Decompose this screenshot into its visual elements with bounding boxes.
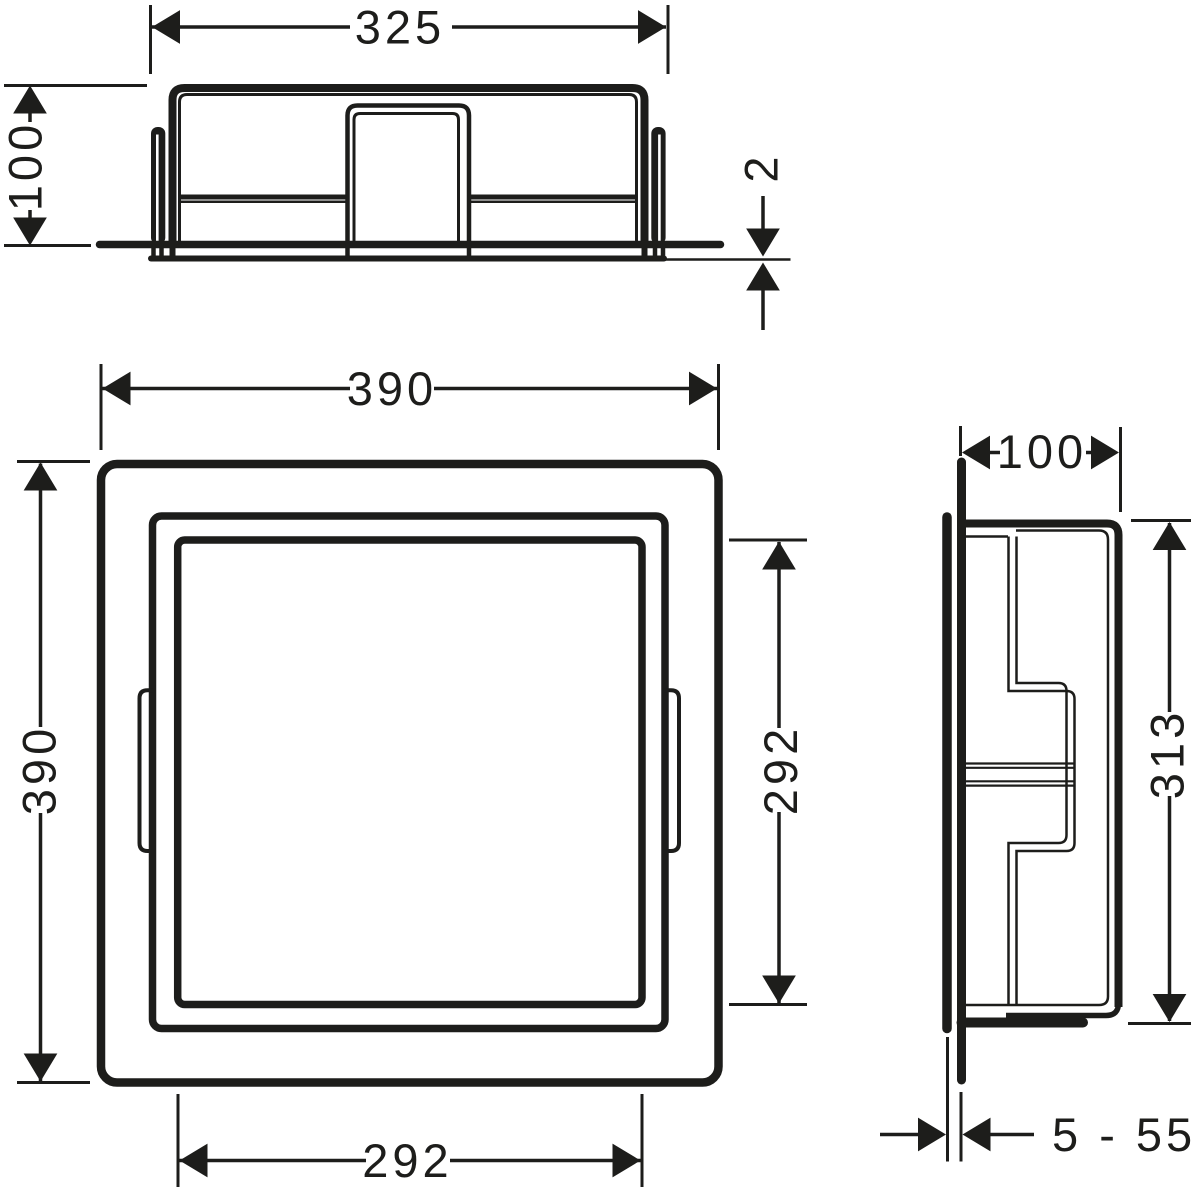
svg-text:325: 325	[355, 1, 445, 54]
svg-text:100: 100	[0, 121, 52, 211]
svg-text:292: 292	[754, 725, 807, 815]
svg-text:2: 2	[735, 152, 788, 182]
svg-text:313: 313	[1141, 709, 1194, 799]
svg-text:292: 292	[362, 1134, 452, 1187]
svg-text:5 - 55: 5 - 55	[1052, 1108, 1196, 1161]
svg-text:100: 100	[997, 425, 1087, 478]
svg-text:390: 390	[13, 725, 66, 815]
svg-text:390: 390	[347, 362, 437, 415]
